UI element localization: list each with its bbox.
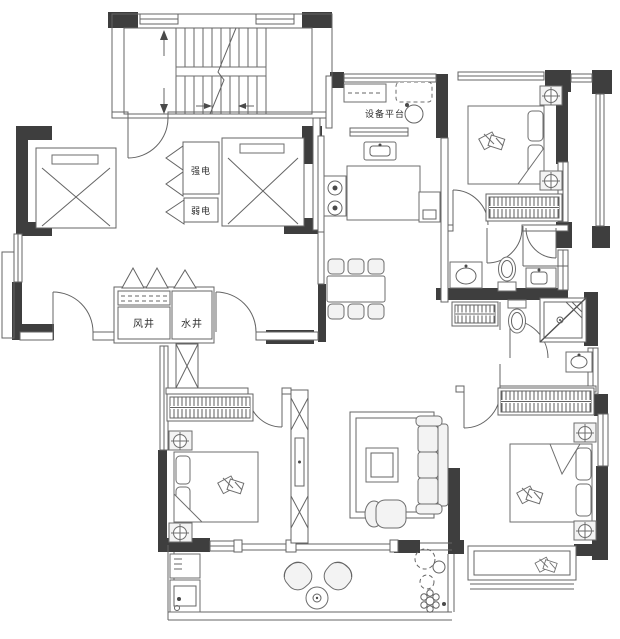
round-tea-table xyxy=(306,587,328,609)
dining-area xyxy=(327,259,385,319)
pillow xyxy=(176,456,190,484)
strong-electric-closet: 强电 xyxy=(183,142,219,194)
bedroom-top-right xyxy=(468,86,562,221)
lobby-side-door xyxy=(53,292,93,332)
wash-basin xyxy=(566,352,592,372)
laundry-cabinet xyxy=(170,554,200,612)
elevator-left xyxy=(36,148,116,228)
wash-basin xyxy=(450,262,482,288)
window xyxy=(350,128,408,136)
coffee-table xyxy=(366,448,398,482)
staircase xyxy=(124,28,312,114)
window xyxy=(571,74,592,82)
stair-room-outline xyxy=(112,14,332,118)
kitchen-sink xyxy=(364,142,396,160)
armchair xyxy=(365,500,406,528)
label-equipment-platform: 设备平台 xyxy=(365,108,405,119)
pillow xyxy=(576,484,591,516)
tv-cabinet-column xyxy=(291,390,308,543)
apartment-entry-door xyxy=(216,292,256,332)
window xyxy=(458,72,544,80)
corner-shower xyxy=(540,298,586,342)
sliding-door xyxy=(234,540,398,552)
equipment-platform: 设备平台 xyxy=(344,82,432,123)
label-wind-shaft: 风井 xyxy=(133,317,155,330)
bedroom-bottom-left xyxy=(167,394,258,542)
dressing-wardrobe xyxy=(452,302,498,326)
kitchen-appliance xyxy=(419,192,440,222)
nightstand xyxy=(169,523,192,542)
balcony-railing xyxy=(168,545,454,620)
bathroom-top xyxy=(450,226,568,291)
nightstand xyxy=(540,86,562,105)
window xyxy=(596,94,604,226)
kitchen xyxy=(324,142,440,222)
potted-plants xyxy=(415,549,446,612)
toilet xyxy=(508,300,526,333)
nightstand xyxy=(574,423,596,442)
label-strong-electric: 强电 xyxy=(191,165,211,176)
balcony xyxy=(170,549,446,612)
floor-plan-drawing: 强电 弱电 风井 水井 设备平台 xyxy=(0,0,620,639)
label-water-shaft: 水井 xyxy=(181,317,203,330)
master-bedroom-door xyxy=(464,392,500,428)
nightstand xyxy=(169,431,192,450)
bedroom-top-right-door xyxy=(453,190,488,225)
small-wash-basin xyxy=(526,268,556,288)
wardrobe xyxy=(486,194,562,221)
washing-machine xyxy=(396,82,432,102)
bay-window xyxy=(468,546,576,589)
toilet-compartment-door xyxy=(526,228,556,258)
window xyxy=(14,234,22,282)
window xyxy=(140,14,178,24)
shoe-cabinet xyxy=(176,344,198,388)
kitchen-counter xyxy=(347,166,420,220)
vent-flaps xyxy=(122,268,196,288)
label-weak-electric: 弱电 xyxy=(191,205,211,216)
wardrobe xyxy=(167,394,253,421)
stair-handrail xyxy=(176,67,266,76)
pillow xyxy=(576,448,591,480)
window xyxy=(256,14,294,24)
nightstand xyxy=(540,171,562,190)
window xyxy=(598,414,608,466)
closet-door-flaps xyxy=(166,146,184,224)
weak-electric-closet: 弱电 xyxy=(184,198,218,222)
dining-table xyxy=(327,276,385,302)
master-bathroom xyxy=(452,298,592,372)
wardrobe xyxy=(498,388,594,415)
shaft-block: 风井 水井 xyxy=(114,268,214,343)
master-bedroom xyxy=(468,388,596,589)
washing-machine-drum xyxy=(405,105,423,123)
water-shaft xyxy=(172,291,212,339)
floor-plan-canvas: 强电 弱电 风井 水井 设备平台 xyxy=(0,0,620,639)
window xyxy=(558,250,568,290)
balcony-chair xyxy=(320,557,357,594)
stair-door xyxy=(128,118,168,158)
sofa xyxy=(416,416,448,514)
gas-stove xyxy=(324,176,346,216)
toilet xyxy=(498,257,516,291)
pillow xyxy=(528,111,543,141)
nightstand xyxy=(574,521,596,540)
living-room xyxy=(350,412,448,528)
platform-railing xyxy=(344,74,436,82)
elevator-middle xyxy=(222,138,304,226)
